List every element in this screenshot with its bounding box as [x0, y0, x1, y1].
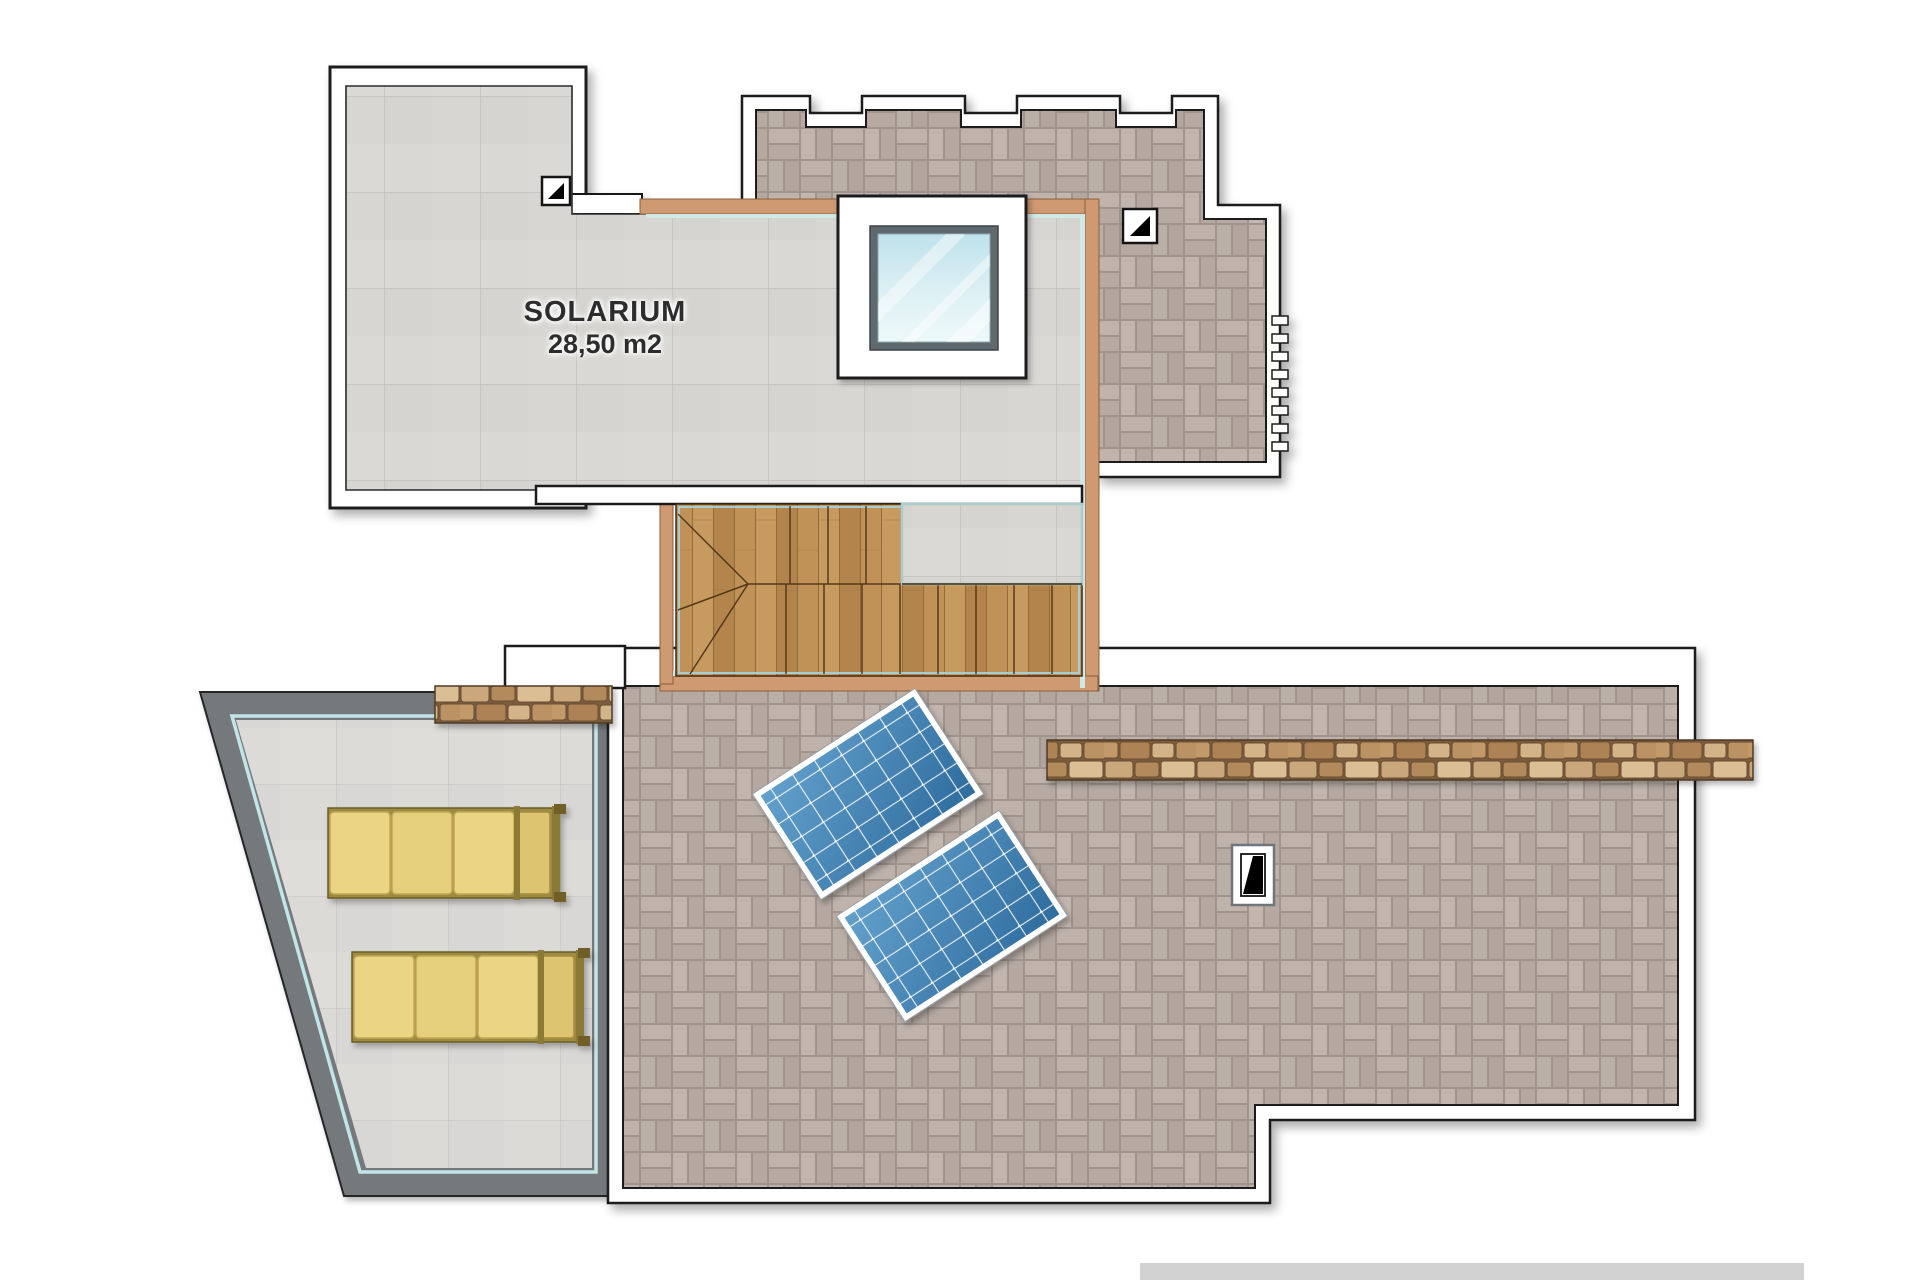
skylight [838, 196, 1030, 380]
sun-lounger-2 [352, 948, 590, 1046]
adjacent-roof-strip [1140, 1263, 1804, 1280]
stone-strip-right [1047, 740, 1753, 780]
stone-strip-left [435, 686, 612, 723]
floor-plan-drawing [0, 0, 1920, 1280]
left-terrace [200, 692, 612, 1196]
floor-plan-canvas: SOLARIUM 28,50 m2 [0, 0, 1920, 1280]
window-symbol-1 [542, 177, 570, 205]
stair-landing [902, 504, 1082, 584]
stair-top-wall [536, 486, 1082, 504]
wooden-staircase [676, 504, 1082, 676]
terrace-west-wall-segment [505, 646, 625, 688]
roof-access-symbol [1232, 845, 1274, 905]
solarium-wall-link [570, 194, 642, 214]
sun-lounger-1 [328, 804, 566, 902]
main-roof-terrace [608, 648, 1695, 1203]
window-symbol-2 [1123, 209, 1157, 243]
